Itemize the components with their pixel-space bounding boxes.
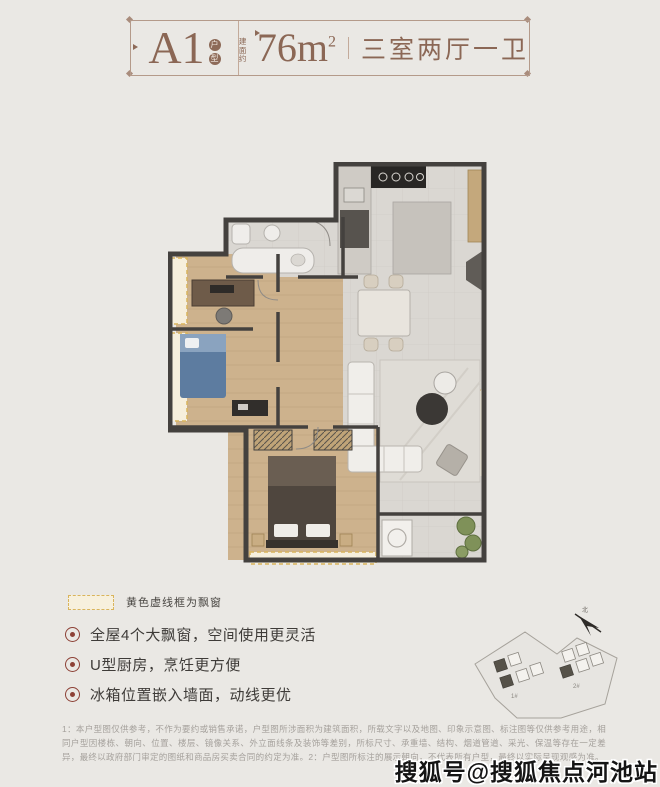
dining-table [358,290,410,336]
watermark-text: 搜狐号@搜狐焦点河池站 [395,753,658,787]
flyer-page: { "header": { "unit": "A1", "unit_badge_… [0,0,660,787]
washing-machine [382,520,412,556]
toilet [232,224,250,244]
master-pillow [306,524,330,537]
dresser [232,400,268,416]
north-label: 北 [582,606,588,614]
wardrobe [314,430,352,450]
dining-chair [389,275,403,288]
kitchen-sink [344,188,364,202]
area-value: 76m2 [257,28,336,68]
legend: 黄色虚线框为飘窗 [68,594,222,610]
header-divider [348,37,349,59]
feature-item: 全屋4个大飘窗，空间使用更灵活 [65,624,316,645]
bay-window-study [171,258,187,324]
monitor [210,285,234,293]
master-pillow [274,524,298,537]
feature-bullet-icon [65,657,80,672]
unit-header: A1 户 型 建面约 76m2 三室两厅一卫 [130,20,530,76]
unit-spec-section: 建面约 76m2 三室两厅一卫 [239,21,529,75]
plant [456,546,468,558]
bathroom-sink [264,225,280,241]
feature-item: U型厨房，烹饪更方便 [65,654,241,675]
sofa-seat [348,446,422,472]
dining-chair [364,275,378,288]
bathtub-drain [291,254,305,266]
nightstand [340,534,352,546]
building-label: 1# [511,694,518,700]
unit-name: A1 [148,25,204,71]
master-bed-blanket [268,456,336,486]
unit-type-badge: 户 [209,39,221,51]
feature-text: 冰箱位置嵌入墙面，动线更优 [90,684,292,705]
wardrobe [254,430,292,450]
plant [457,517,475,535]
dining-chair [364,338,378,351]
header-arrow-ornament [133,44,138,50]
unit-type-badges: 户 型 [209,39,221,65]
room-layout-text: 三室两厅一卫 [361,30,529,66]
feature-bullet-icon [65,687,80,702]
desk-chair [216,308,232,324]
coffee-table-small [434,372,456,394]
area-number: 76 [257,25,297,70]
dresser-detail [238,404,248,410]
small-bed-pillow [185,338,199,348]
floor-plan [168,162,498,568]
headboard [266,540,338,548]
north-arrow-icon: 北 [575,606,601,636]
area-unit: m [297,25,328,70]
site-boundary [475,632,617,718]
unit-name-section: A1 户 型 [131,21,239,75]
unit-type-badge: 型 [209,53,221,65]
building-label: 2# [573,684,580,690]
kitchen-island [393,202,451,274]
site-map: 1# 2# 北 [465,602,637,728]
feature-text: U型厨房，烹饪更方便 [90,654,241,675]
nightstand [252,534,264,546]
feature-bullet-icon [65,627,80,642]
hallway-floor [278,277,343,427]
legend-label: 黄色虚线框为飘窗 [126,594,222,610]
header-arrow-ornament [255,30,260,36]
feature-text: 全屋4个大飘窗，空间使用更灵活 [90,624,316,645]
coffee-table-large [416,393,448,425]
area-superscript: 2 [328,34,336,51]
area-prefix: 建面约 [239,38,249,64]
dining-chair [389,338,403,351]
bay-window-legend-swatch [68,595,114,610]
feature-item: 冰箱位置嵌入墙面，动线更优 [65,684,292,705]
kitchen-cabinet-strip [468,170,482,242]
